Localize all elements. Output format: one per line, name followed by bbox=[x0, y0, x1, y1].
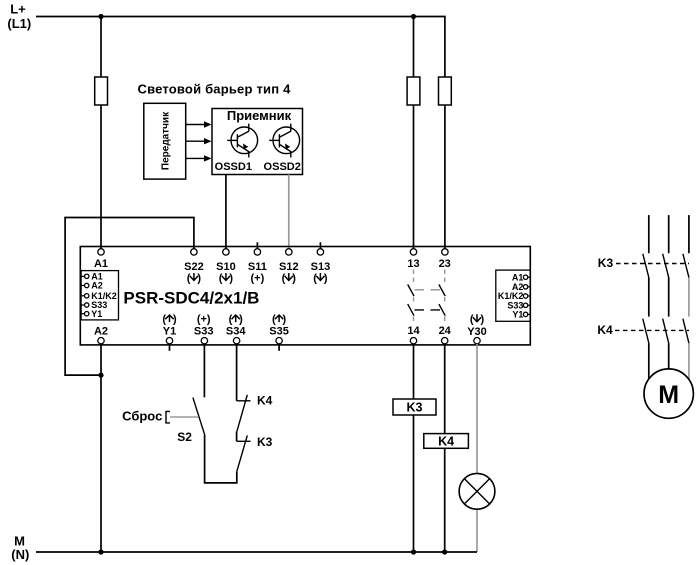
svg-text:(+): (+) bbox=[251, 272, 265, 284]
svg-text:K3: K3 bbox=[257, 435, 273, 449]
svg-text:Приемник: Приемник bbox=[227, 108, 292, 123]
svg-text:13: 13 bbox=[407, 258, 419, 270]
svg-text:A1: A1 bbox=[94, 258, 108, 270]
svg-text:24: 24 bbox=[439, 325, 452, 337]
svg-text:K4: K4 bbox=[257, 394, 273, 408]
svg-text:A2: A2 bbox=[94, 326, 108, 338]
svg-text:S11: S11 bbox=[248, 261, 267, 273]
svg-text:K3: K3 bbox=[598, 256, 614, 270]
svg-text:S13: S13 bbox=[311, 261, 331, 273]
svg-text:S34: S34 bbox=[226, 326, 246, 338]
svg-text:S12: S12 bbox=[279, 261, 299, 273]
svg-text:OSSD1: OSSD1 bbox=[215, 161, 252, 173]
svg-text:K3: K3 bbox=[407, 401, 423, 415]
svg-text:A1: A1 bbox=[512, 272, 524, 282]
svg-text:M: M bbox=[658, 381, 679, 409]
svg-text:K4: K4 bbox=[597, 323, 613, 337]
svg-text:L+: L+ bbox=[10, 2, 26, 17]
svg-text:S33: S33 bbox=[194, 326, 214, 338]
svg-text:K4: K4 bbox=[438, 435, 454, 449]
svg-text:(N): (N) bbox=[11, 547, 29, 562]
svg-text:S22: S22 bbox=[184, 261, 204, 273]
svg-text:Y1: Y1 bbox=[512, 310, 523, 320]
svg-text:Сброс: Сброс bbox=[122, 409, 162, 424]
svg-text:Передатчик: Передатчик bbox=[161, 111, 172, 170]
svg-text:23: 23 bbox=[439, 258, 451, 270]
svg-text:S35: S35 bbox=[269, 326, 289, 338]
svg-text:PSR-SDC4/2x1/B: PSR-SDC4/2x1/B bbox=[123, 289, 259, 308]
svg-text:S2: S2 bbox=[177, 430, 192, 444]
svg-text:14: 14 bbox=[407, 325, 420, 337]
svg-text:Y1: Y1 bbox=[163, 326, 176, 338]
svg-text:OSSD2: OSSD2 bbox=[264, 161, 301, 173]
svg-text:Y1: Y1 bbox=[91, 309, 102, 319]
svg-text:Y30: Y30 bbox=[467, 326, 487, 338]
svg-text:S10: S10 bbox=[216, 261, 236, 273]
svg-text:(+): (+) bbox=[197, 314, 211, 326]
svg-text:(L1): (L1) bbox=[7, 16, 31, 31]
svg-text:A2: A2 bbox=[91, 281, 103, 291]
svg-text:Световой барьер тип 4: Световой барьер тип 4 bbox=[138, 82, 292, 97]
